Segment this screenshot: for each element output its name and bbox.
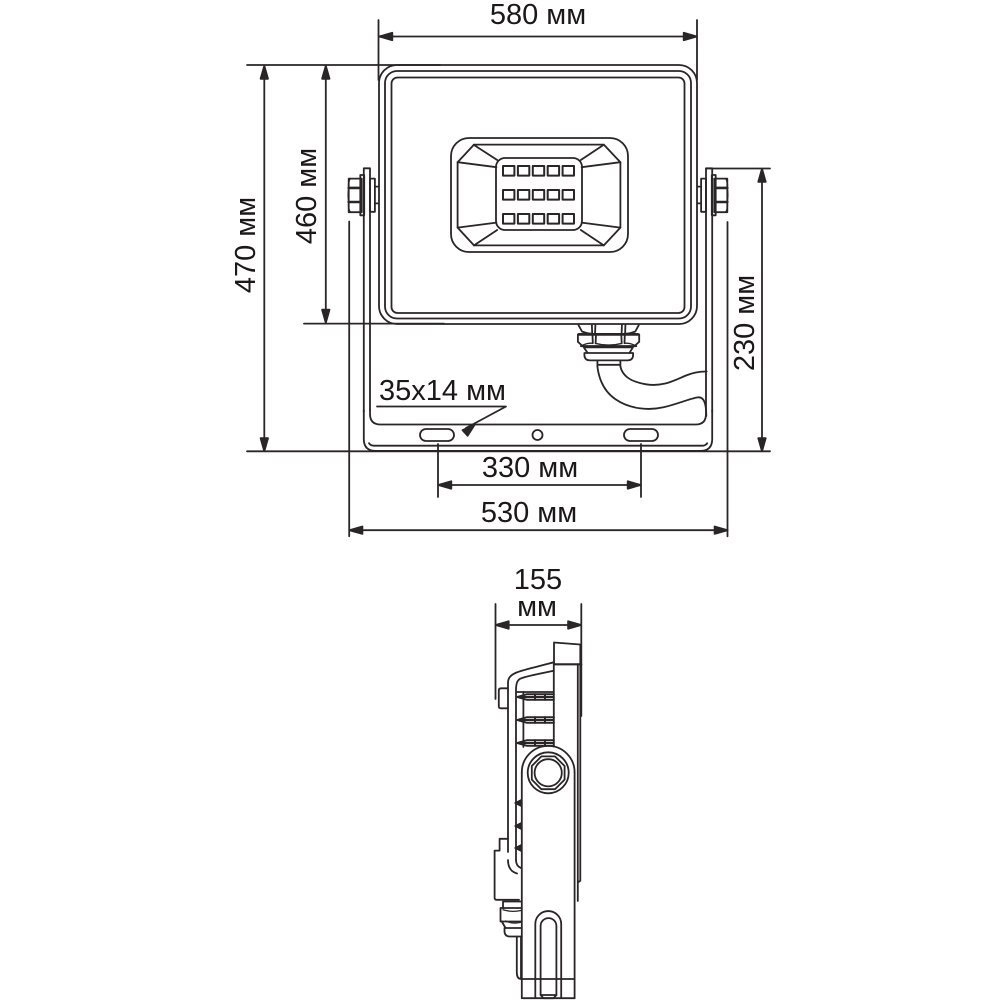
svg-text:230 мм: 230 мм	[729, 275, 761, 371]
svg-text:460 мм: 460 мм	[291, 148, 323, 244]
svg-text:мм: мм	[517, 591, 557, 623]
svg-text:35x14 мм: 35x14 мм	[379, 375, 506, 407]
svg-text:470 мм: 470 мм	[230, 197, 262, 293]
svg-text:530 мм: 530 мм	[481, 497, 577, 529]
svg-text:580 мм: 580 мм	[490, 0, 586, 31]
svg-text:330 мм: 330 мм	[482, 452, 578, 484]
